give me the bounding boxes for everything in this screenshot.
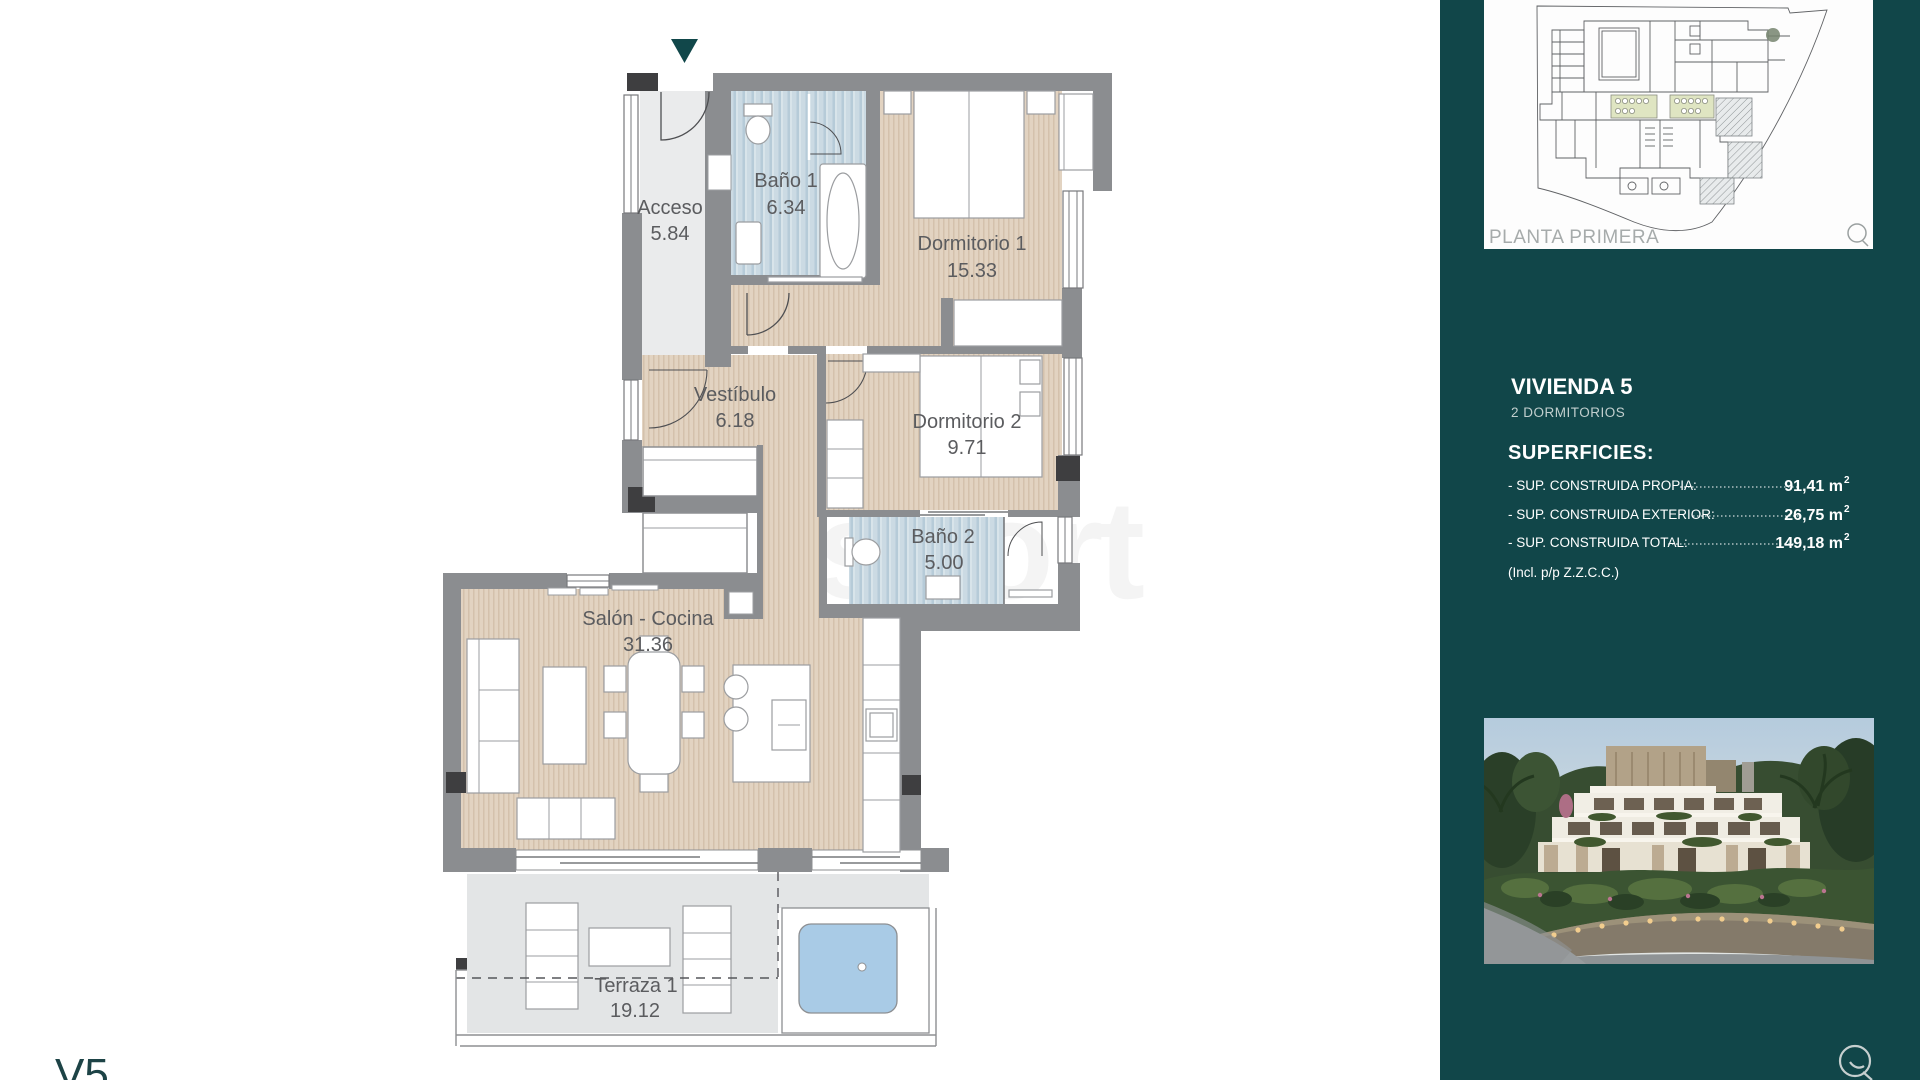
- svg-text:Baño 2: Baño 2: [911, 526, 974, 548]
- svg-text:Dormitorio 1: Dormitorio 1: [918, 233, 1027, 255]
- svg-text:15.33: 15.33: [947, 260, 997, 282]
- svg-text:2: 2: [1844, 532, 1850, 543]
- svg-text:VIVIENDA 5: VIVIENDA 5: [1511, 374, 1632, 399]
- svg-text:91,41 m: 91,41 m: [1784, 478, 1843, 495]
- svg-text:Vestíbulo: Vestíbulo: [694, 384, 776, 406]
- svg-text:PLANTA PRIMERA: PLANTA PRIMERA: [1489, 227, 1659, 248]
- svg-text:31.36: 31.36: [623, 634, 673, 656]
- svg-text:26,75 m: 26,75 m: [1784, 507, 1843, 524]
- svg-text:SUPERFICIES:: SUPERFICIES:: [1508, 442, 1654, 464]
- svg-text:5.84: 5.84: [651, 223, 690, 245]
- svg-text:Terraza 1: Terraza 1: [594, 975, 677, 997]
- svg-text:2 DORMITORIOS: 2 DORMITORIOS: [1511, 405, 1625, 420]
- svg-text:5.00: 5.00: [925, 552, 964, 574]
- svg-text:V5: V5: [55, 1050, 109, 1080]
- svg-text:Salón - Cocina: Salón - Cocina: [582, 608, 714, 630]
- svg-text:Baño 1: Baño 1: [754, 170, 817, 192]
- svg-text:6.34: 6.34: [767, 197, 806, 219]
- svg-text:6.18: 6.18: [716, 410, 755, 432]
- svg-text:2: 2: [1844, 475, 1850, 486]
- svg-text:- SUP. CONSTRUIDA EXTERIOR:: - SUP. CONSTRUIDA EXTERIOR:: [1508, 507, 1715, 522]
- svg-text:- SUP. CONSTRUIDA TOTAL:: - SUP. CONSTRUIDA TOTAL:: [1508, 535, 1688, 550]
- svg-text:Dormitorio 2: Dormitorio 2: [913, 411, 1022, 433]
- svg-text:Acceso: Acceso: [637, 197, 703, 219]
- svg-text:149,18 m: 149,18 m: [1775, 535, 1843, 552]
- svg-text:19.12: 19.12: [610, 1000, 660, 1022]
- svg-text:- SUP. CONSTRUIDA PROPIA:: - SUP. CONSTRUIDA PROPIA:: [1508, 478, 1697, 493]
- svg-text:9.71: 9.71: [948, 437, 987, 459]
- svg-text:(Incl. p/p Z.Z.C.C.): (Incl. p/p Z.Z.C.C.): [1508, 565, 1619, 580]
- svg-text:2: 2: [1844, 504, 1850, 515]
